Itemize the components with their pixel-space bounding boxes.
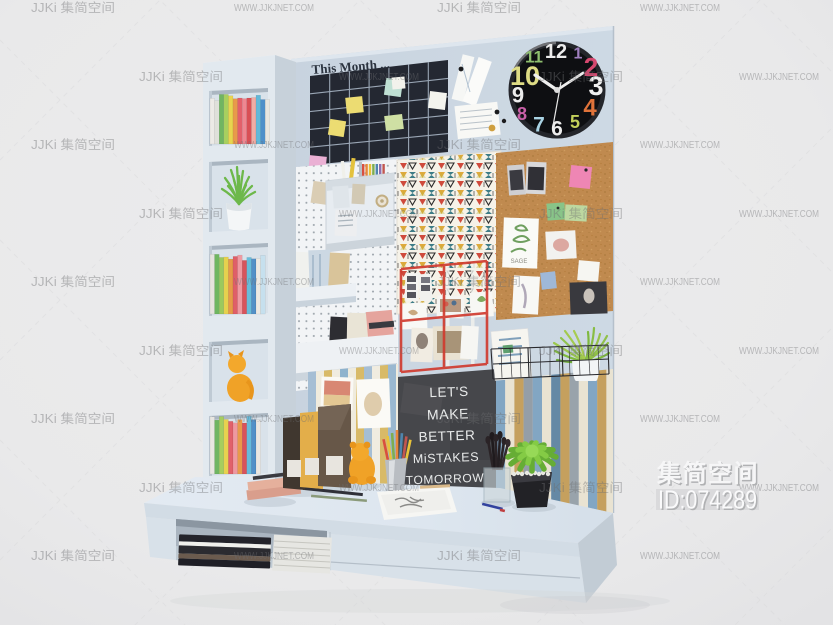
svg-text:JJKi 集简空间: JJKi 集简空间	[31, 548, 115, 563]
svg-text:JJKi 集简空间: JJKi 集简空间	[437, 137, 521, 152]
svg-text:WWW.JJKJNET.COM: WWW.JJKJNET.COM	[739, 345, 819, 357]
svg-text:1: 1	[574, 46, 583, 63]
svg-text:WWW.JJKJNET.COM: WWW.JJKJNET.COM	[640, 413, 720, 425]
svg-text:JJKi 集简空间: JJKi 集简空间	[539, 69, 623, 84]
svg-text:WWW.JJKJNET.COM: WWW.JJKJNET.COM	[339, 482, 419, 494]
svg-text:SAGE: SAGE	[511, 259, 528, 265]
svg-text:7: 7	[533, 114, 545, 137]
svg-text:集简空间: 集简空间	[656, 460, 759, 488]
svg-text:WWW.JJKJNET.COM: WWW.JJKJNET.COM	[339, 345, 419, 357]
svg-text:JJKi 集简空间: JJKi 集简空间	[539, 480, 623, 495]
svg-text:JJKi 集简空间: JJKi 集简空间	[31, 0, 115, 15]
svg-text:JJKi 集简空间: JJKi 集简空间	[139, 480, 223, 495]
svg-text:WWW.JJKJNET.COM: WWW.JJKJNET.COM	[339, 71, 419, 83]
svg-text:WWW.JJKJNET.COM: WWW.JJKJNET.COM	[739, 71, 819, 83]
svg-text:JJKi 集简空间: JJKi 集简空间	[31, 274, 115, 289]
svg-text:JJKi 集简空间: JJKi 集简空间	[437, 548, 521, 563]
svg-text:6: 6	[551, 118, 563, 141]
svg-text:JJKi 集简空间: JJKi 集简空间	[437, 274, 521, 289]
svg-text:WWW.JJKJNET.COM: WWW.JJKJNET.COM	[234, 139, 314, 151]
svg-text:BETTER: BETTER	[418, 428, 475, 445]
svg-text:WWW.JJKJNET.COM: WWW.JJKJNET.COM	[339, 208, 419, 220]
svg-text:JJKi 集简空间: JJKi 集简空间	[437, 411, 521, 426]
svg-text:LET'S: LET'S	[429, 384, 469, 400]
svg-text:12: 12	[545, 41, 567, 63]
svg-text:WWW.JJKJNET.COM: WWW.JJKJNET.COM	[640, 139, 720, 151]
svg-text:JJKi 集简空间: JJKi 集简空间	[539, 343, 623, 358]
svg-text:WWW.JJKJNET.COM: WWW.JJKJNET.COM	[640, 550, 720, 562]
svg-text:4: 4	[583, 95, 597, 122]
svg-text:WWW.JJKJNET.COM: WWW.JJKJNET.COM	[234, 276, 314, 288]
svg-text:JJKi 集简空间: JJKi 集简空间	[31, 137, 115, 152]
svg-text:JJKi 集简空间: JJKi 集简空间	[139, 206, 223, 221]
svg-text:JJKi 集简空间: JJKi 集简空间	[31, 411, 115, 426]
svg-text:WWW.JJKJNET.COM: WWW.JJKJNET.COM	[640, 2, 720, 14]
svg-text:ID:074289: ID:074289	[658, 485, 757, 515]
svg-text:JJKi 集简空间: JJKi 集简空间	[139, 343, 223, 358]
svg-text:JJKi 集简空间: JJKi 集简空间	[139, 69, 223, 84]
svg-text:JJKi 集简空间: JJKi 集简空间	[539, 206, 623, 221]
svg-text:WWW.JJKJNET.COM: WWW.JJKJNET.COM	[739, 208, 819, 220]
svg-text:WWW.JJKJNET.COM: WWW.JJKJNET.COM	[234, 413, 314, 425]
svg-text:WWW.JJKJNET.COM: WWW.JJKJNET.COM	[640, 276, 720, 288]
svg-text:11: 11	[525, 48, 543, 67]
svg-text:WWW.JJKJNET.COM: WWW.JJKJNET.COM	[234, 2, 314, 14]
svg-text:WWW.JJKJNET.COM: WWW.JJKJNET.COM	[234, 550, 314, 562]
svg-text:JJKi 集简空间: JJKi 集简空间	[437, 0, 521, 15]
svg-text:MiSTAKES: MiSTAKES	[413, 450, 480, 466]
svg-text:5: 5	[570, 112, 580, 132]
